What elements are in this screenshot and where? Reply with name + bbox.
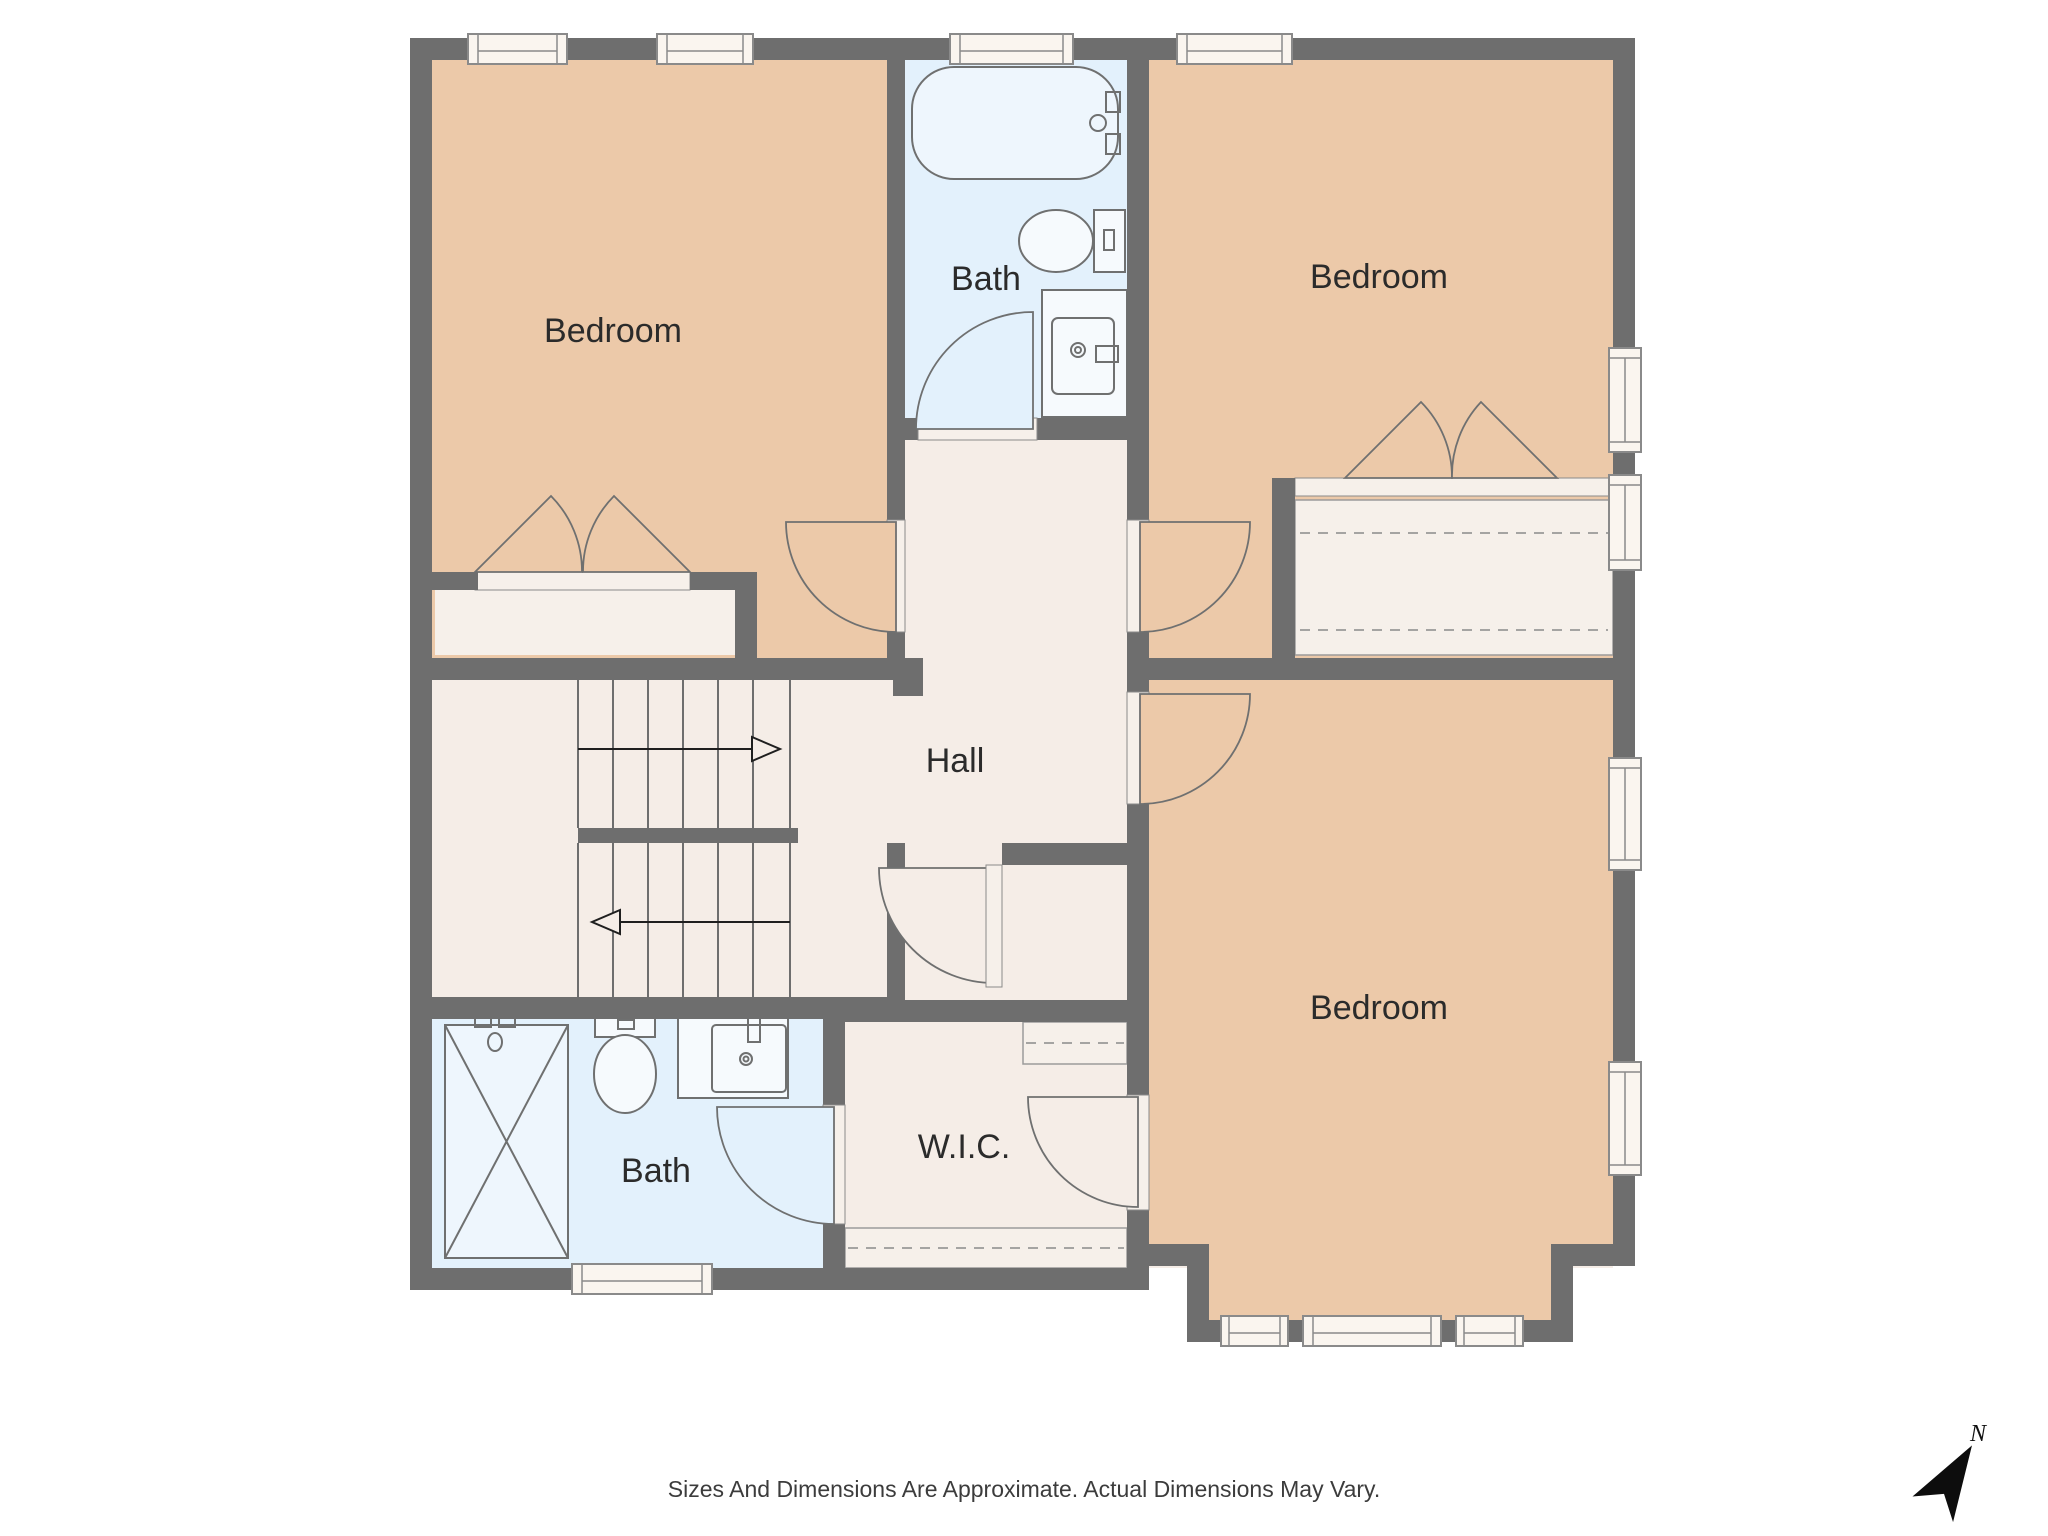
north-label: N — [1969, 1421, 1988, 1447]
window — [1177, 34, 1292, 64]
room-label-bedroom-bottom-right: Bedroom — [1310, 989, 1448, 1027]
window — [1221, 1316, 1288, 1346]
closet-top-right-track — [1295, 478, 1613, 496]
room-label-wic: W.I.C. — [918, 1128, 1011, 1166]
window — [657, 34, 753, 64]
bathtub-icon — [912, 67, 1118, 179]
toilet-icon — [594, 1015, 656, 1113]
window — [1303, 1316, 1441, 1346]
closet-top-right-box — [1295, 500, 1613, 655]
window — [950, 34, 1073, 64]
window — [572, 1264, 712, 1294]
window — [1609, 348, 1641, 452]
window — [1456, 1316, 1523, 1346]
toilet-icon — [1019, 210, 1125, 272]
bay-floor — [1209, 1244, 1551, 1320]
wic-shelf-top — [1023, 1022, 1127, 1064]
window — [1609, 1062, 1641, 1175]
floor-plan-drawing: Bedroom Bath Bedroom Hall Bedroom Bath W… — [0, 0, 2048, 1536]
room-label-hall: Hall — [926, 742, 985, 780]
shower-icon — [445, 1015, 568, 1258]
window — [468, 34, 567, 64]
closet-top-left-box — [435, 588, 735, 655]
disclaimer-text: Sizes And Dimensions Are Approximate. Ac… — [668, 1476, 1380, 1502]
closet-top-left-track — [475, 572, 690, 590]
room-label-bath-bottom: Bath — [621, 1152, 691, 1190]
door-leaf-icon — [986, 865, 1002, 987]
room-label-bedroom-top-right: Bedroom — [1310, 258, 1448, 296]
sink-vanity-icon — [678, 1013, 788, 1098]
room-label-bedroom-top-left: Bedroom — [544, 312, 682, 350]
door-gap — [905, 843, 1002, 865]
compass: N — [1911, 1421, 1991, 1522]
sink-vanity-icon — [1042, 290, 1127, 417]
floor-plan-page: Bedroom Bath Bedroom Hall Bedroom Bath W… — [0, 0, 2048, 1536]
room-label-bath-top: Bath — [951, 260, 1021, 298]
window — [1609, 758, 1641, 870]
window — [1609, 475, 1641, 570]
